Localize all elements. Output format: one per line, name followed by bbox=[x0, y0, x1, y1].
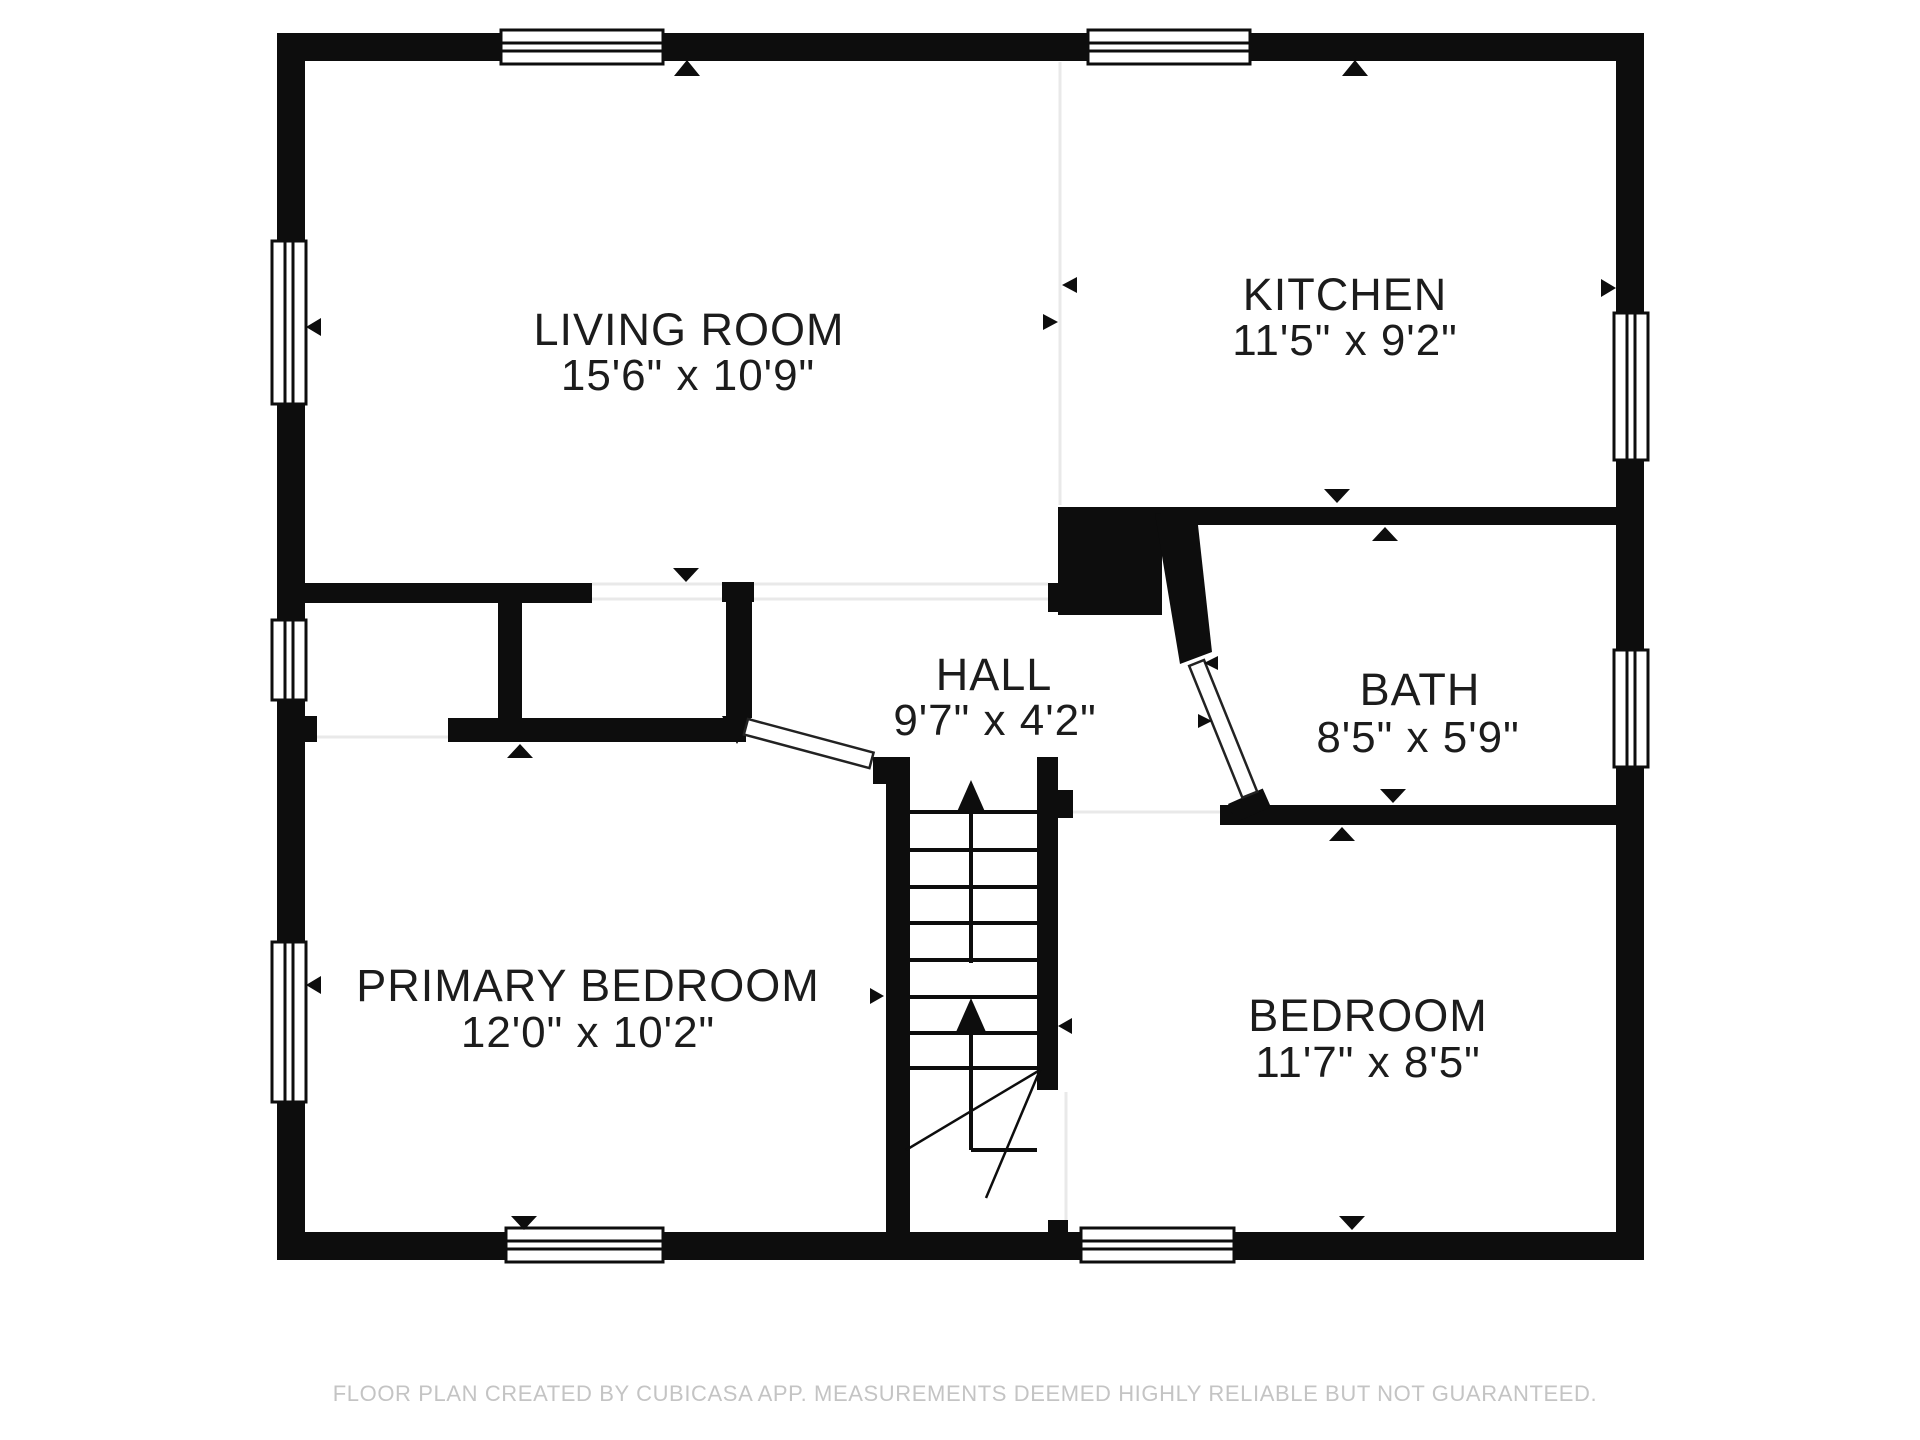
wall-stub-left bbox=[300, 716, 317, 742]
wall-closet-bottom bbox=[448, 718, 746, 742]
label-bath: BATH bbox=[1360, 664, 1481, 715]
window-right-bath bbox=[1614, 650, 1648, 767]
exterior-wall-top bbox=[277, 33, 1644, 61]
floor-plan-page: LIVING ROOM 15'6" x 10'9" KITCHEN 11'5" … bbox=[0, 0, 1920, 1440]
wall-stair-right bbox=[1037, 757, 1058, 1090]
label-living-room: LIVING ROOM bbox=[533, 304, 844, 355]
label-bedroom: BEDROOM bbox=[1248, 990, 1488, 1041]
window-left-2 bbox=[272, 620, 306, 700]
wall-hall-bath-block bbox=[1058, 507, 1162, 615]
wall-stair-left bbox=[886, 757, 910, 1232]
dims-bedroom: 11'7" x 8'5" bbox=[1255, 1038, 1481, 1087]
wall-hall-left bbox=[726, 582, 752, 718]
label-hall: HALL bbox=[936, 649, 1053, 700]
floor-plan-canvas: LIVING ROOM 15'6" x 10'9" KITCHEN 11'5" … bbox=[0, 0, 1920, 1440]
dims-living-room: 15'6" x 10'9" bbox=[561, 351, 815, 400]
window-left-1 bbox=[272, 241, 306, 404]
wall-living-room-bottom bbox=[293, 583, 592, 603]
footer-disclaimer: FLOOR PLAN CREATED BY CUBICASA APP. MEAS… bbox=[333, 1381, 1598, 1406]
window-left-3 bbox=[272, 942, 306, 1102]
wall-stair-right-stub bbox=[1058, 790, 1073, 818]
label-kitchen: KITCHEN bbox=[1243, 269, 1448, 320]
wall-boundary-notch bbox=[1048, 583, 1060, 612]
wall-bath-bottom bbox=[1220, 805, 1616, 825]
window-top-1 bbox=[501, 30, 663, 64]
window-top-2 bbox=[1088, 30, 1250, 64]
dims-primary-bedroom: 12'0" x 10'2" bbox=[461, 1008, 715, 1057]
dims-kitchen: 11'5" x 9'2" bbox=[1232, 316, 1458, 365]
wall-closet-divider bbox=[498, 602, 522, 722]
label-primary-bedroom: PRIMARY BEDROOM bbox=[356, 960, 819, 1011]
dims-bath: 8'5" x 5'9" bbox=[1316, 713, 1519, 762]
window-bottom-2 bbox=[1081, 1228, 1234, 1262]
exterior-wall-right bbox=[1616, 33, 1644, 1260]
window-right-kitchen bbox=[1614, 313, 1648, 460]
wall-bedroom-door-stub bbox=[1048, 1220, 1068, 1232]
wall-bath-top bbox=[1162, 507, 1616, 525]
dims-hall: 9'7" x 4'2" bbox=[893, 696, 1096, 745]
window-bottom-1 bbox=[506, 1228, 663, 1262]
exterior-wall-bottom bbox=[277, 1232, 1644, 1260]
